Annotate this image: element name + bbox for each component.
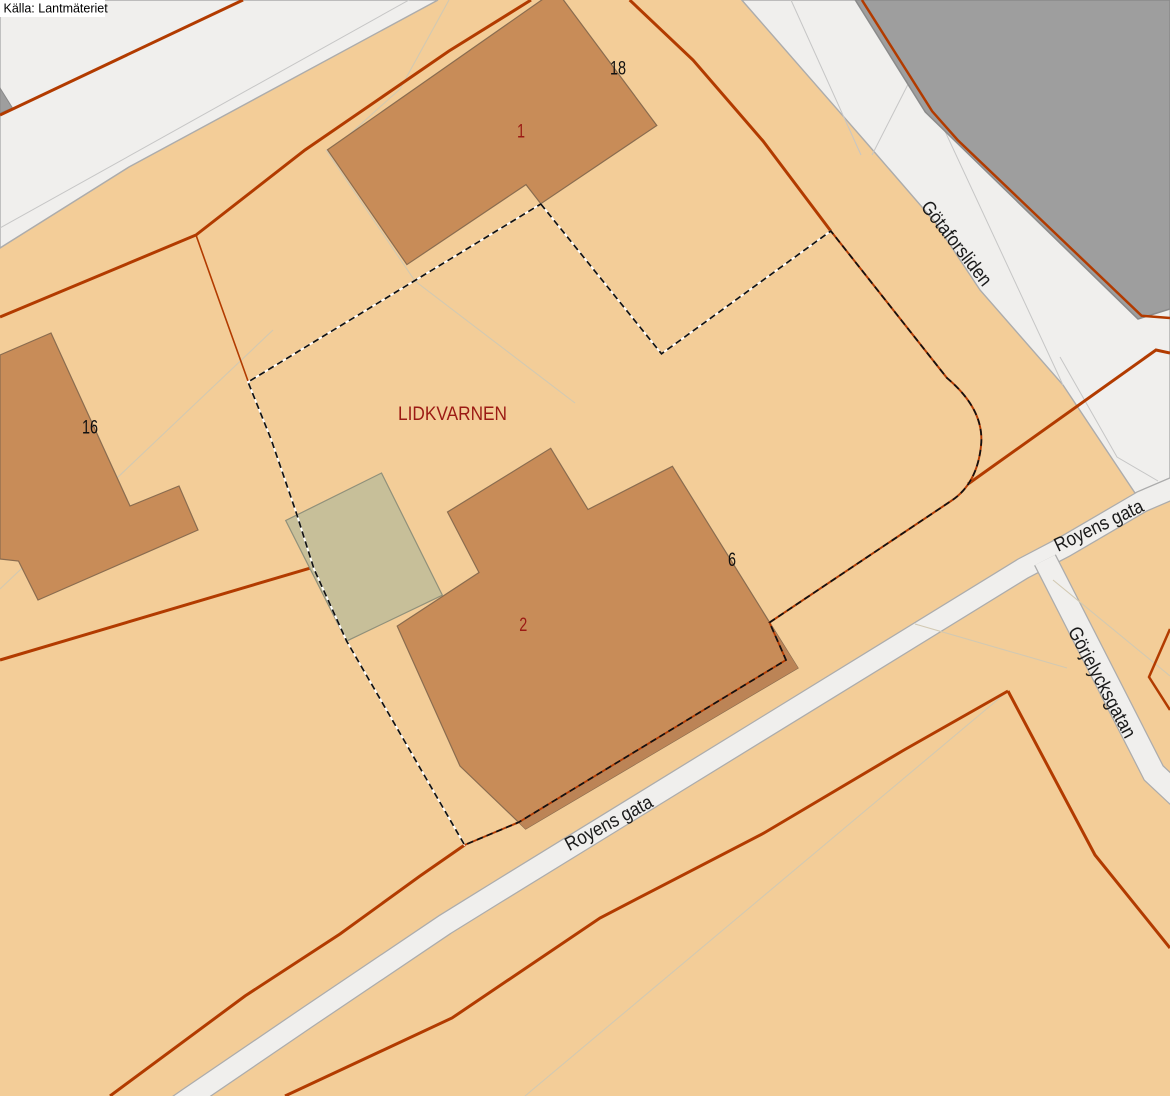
svg-text:18: 18	[610, 56, 626, 79]
svg-text:6: 6	[728, 548, 736, 571]
svg-text:2: 2	[519, 613, 527, 636]
svg-text:LIDKVARNEN: LIDKVARNEN	[398, 402, 507, 424]
svg-text:Källa: Lantmäteriet: Källa: Lantmäteriet	[4, 2, 109, 16]
svg-text:1: 1	[517, 119, 525, 142]
svg-text:16: 16	[82, 415, 98, 438]
